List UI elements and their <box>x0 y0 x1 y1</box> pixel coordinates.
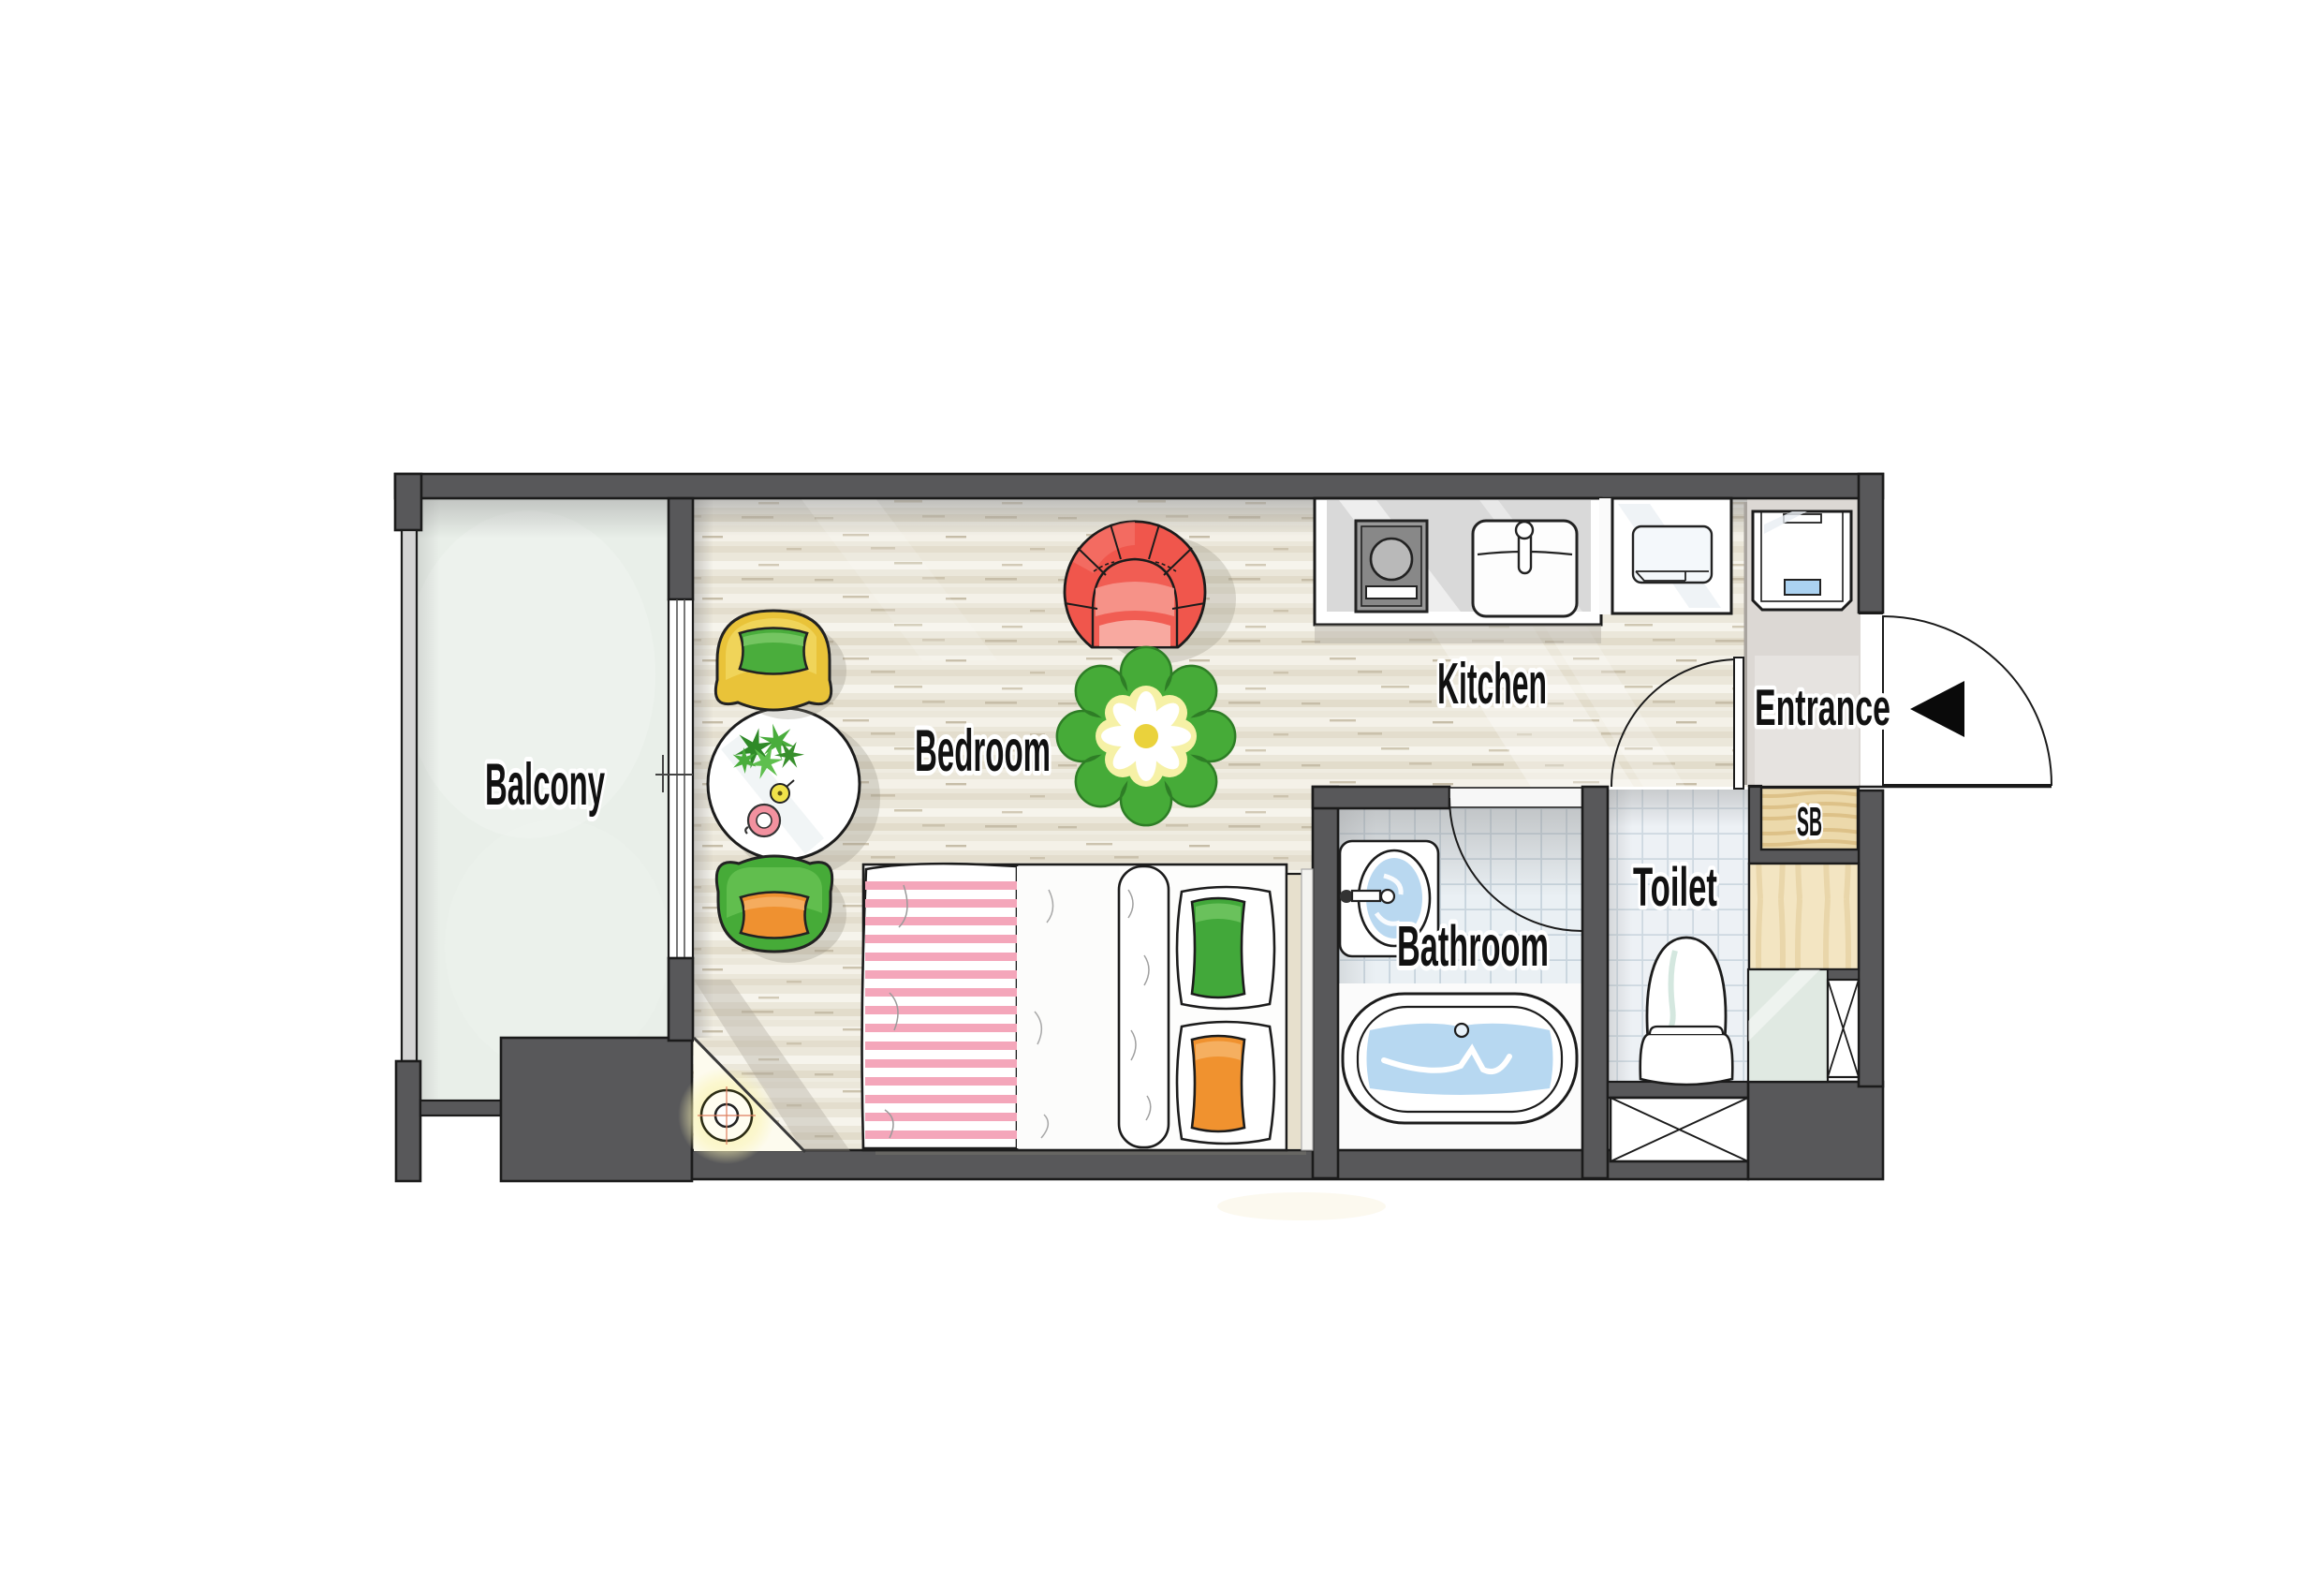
svg-text:Entrance: Entrance <box>1755 678 1890 736</box>
svg-text:Bedroom: Bedroom <box>915 718 1051 784</box>
svg-text:SB: SB <box>1797 799 1822 845</box>
svg-text:Bathroom: Bathroom <box>1397 914 1549 978</box>
svg-text:Kitchen: Kitchen <box>1437 652 1547 717</box>
svg-text:Toilet: Toilet <box>1633 857 1717 918</box>
svg-text:Balcony: Balcony <box>485 752 605 818</box>
